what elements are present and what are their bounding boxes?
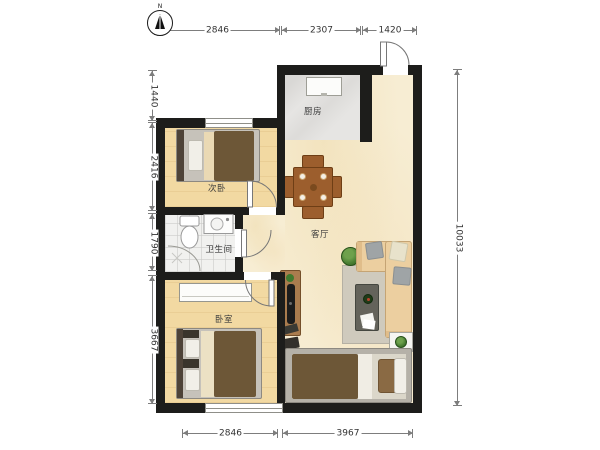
second-bedroom-door-arc — [250, 181, 277, 208]
entrance-door-arc — [387, 42, 410, 65]
dim-bottom-2: 3967 — [283, 433, 413, 434]
shower-tile-cross — [172, 253, 182, 263]
dim-value: 1420 — [377, 26, 404, 37]
compass: N — [146, 4, 174, 38]
dim-value: 2307 — [308, 26, 335, 37]
dim-left-4: 3667 — [152, 276, 153, 404]
entrance-door-leaf — [381, 42, 387, 66]
dim-value: 2846 — [204, 26, 231, 37]
bedroom-door-arc — [246, 280, 272, 306]
dim-value: 1440 — [148, 83, 159, 110]
bathroom-door-leaf — [242, 230, 247, 257]
dim-value: 2846 — [217, 429, 244, 440]
room-label-bathroom: 卫生间 — [200, 243, 238, 255]
second-bedroom-door-leaf — [248, 181, 253, 207]
dim-value: 10033 — [453, 222, 464, 255]
sink-faucet — [226, 218, 229, 221]
room-label-living-room: 客厅 — [306, 228, 334, 240]
sink-basin — [211, 218, 223, 230]
shower-curb — [168, 246, 200, 271]
dim-value: 3967 — [335, 429, 362, 440]
dim-top-3: 1420 — [363, 30, 417, 31]
dim-value: 2416 — [148, 154, 159, 181]
dim-top-2: 2307 — [282, 30, 361, 31]
room-label-bedroom: 卧室 — [210, 313, 238, 325]
dim-left-2: 2416 — [152, 123, 153, 211]
floorplan-canvas: 厨房 次卧 卫生间 客厅 卧室 2846 2307 1420 2846 3967… — [0, 0, 600, 450]
compass-north-label: N — [146, 3, 174, 10]
toilet-tank — [180, 216, 199, 226]
dim-right-1: 10033 — [457, 70, 458, 406]
bedroom-door-leaf — [269, 280, 274, 306]
doors-and-fixtures-layer — [0, 0, 600, 450]
dim-value: 1790 — [148, 229, 159, 256]
compass-circle — [147, 10, 173, 36]
dim-bottom-1: 2846 — [183, 433, 278, 434]
compass-arrow-split — [160, 15, 161, 29]
dim-value: 3667 — [148, 327, 159, 354]
room-label-kitchen: 厨房 — [295, 105, 331, 117]
dim-left-3: 1790 — [152, 214, 153, 271]
room-label-second-bedroom: 次卧 — [203, 182, 231, 194]
dim-left-1: 1440 — [152, 71, 153, 121]
toilet-bowl — [181, 226, 198, 248]
bathroom-door-arc — [244, 230, 271, 257]
